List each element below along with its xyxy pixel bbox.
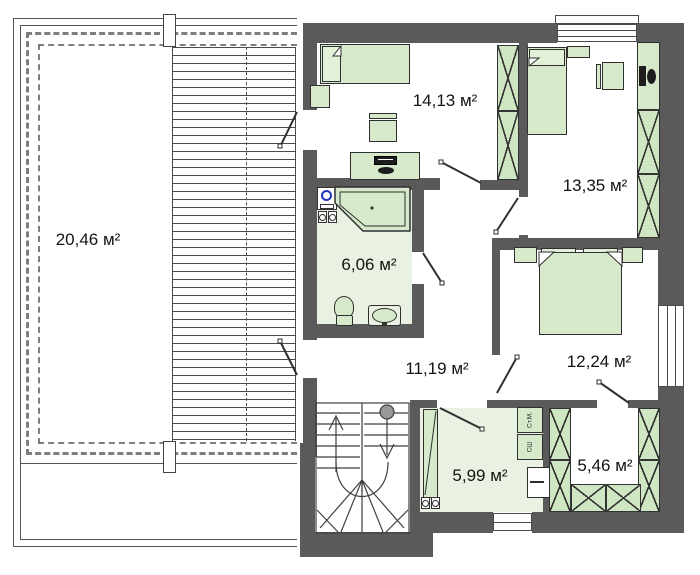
ironing-board [423,409,438,498]
nightstand [310,85,330,108]
wall-segment [303,324,424,338]
room-area-label-bathroom: 6,06 м² [341,255,396,275]
detergent-tray [320,204,334,209]
chair [596,64,601,89]
pillow [322,46,341,82]
roof-ridge-line [246,47,247,441]
room-area-label-bedroom-master: 12,24 м² [567,352,632,372]
wardrobe [637,174,660,238]
chair [602,62,624,90]
vent-box [421,497,430,509]
vent-box [431,497,440,509]
washer-box-label: Ст.М. [527,412,534,428]
terrace-band-line [20,463,297,464]
wall-segment [628,400,663,408]
wardrobe [606,484,641,512]
room-area-label-walk-in-closet: 5,46 м² [577,456,632,476]
wall-segment [303,23,557,43]
wall-segment [658,43,684,307]
chair [369,120,397,142]
dryer-box-label: СШ [527,442,534,453]
room-area-label-hallway: 11,19 м² [405,359,468,379]
keyboard [647,69,656,84]
window-top [557,24,637,42]
wall-segment [410,512,493,533]
wall-segment [492,250,500,355]
nightstand [622,247,643,263]
window-sill [555,15,639,24]
wardrobe [571,484,606,512]
wall-segment [637,23,684,43]
washer-box: Ст.М. [517,407,543,433]
wardrobe [638,460,660,512]
wardrobe [497,111,519,180]
wardrobe [637,110,660,174]
roof-deck-hatch [172,47,296,441]
room-area-label-bedroom-top: 14,13 м² [413,91,478,111]
window-right [658,305,684,387]
vent-box [328,211,337,223]
keyboard [378,167,394,174]
wall-segment [410,402,420,512]
room-area-label-laundry: 5,99 м² [452,466,507,486]
shelf [567,46,590,58]
wall-segment [300,532,433,557]
double-bed [539,252,622,335]
dryer-box: СШ [517,434,543,460]
wardrobe [497,45,519,111]
wall-segment [532,512,684,533]
wardrobe [549,460,571,512]
computer-monitor [639,66,646,86]
vent-box [318,211,327,223]
chair [369,113,397,119]
sink-basin [372,308,397,323]
pillow [529,49,565,66]
sink-tap [382,322,387,326]
chimney [163,14,176,47]
floor-plan: 20,46 м² [0,0,700,575]
toilet-tank [336,315,353,326]
nightstand [514,247,537,263]
chimney [163,441,176,473]
room-area-label-bedroom-right: 13,35 м² [563,176,628,196]
window-bottom [493,513,532,531]
wardrobe [638,408,660,460]
wardrobe [549,408,571,460]
wall-segment [412,178,424,252]
computer-monitor [374,156,397,165]
room-area-label-terrace: 20,46 м² [56,230,121,250]
washing-machine-door [321,190,332,201]
utility-sink [527,467,550,498]
